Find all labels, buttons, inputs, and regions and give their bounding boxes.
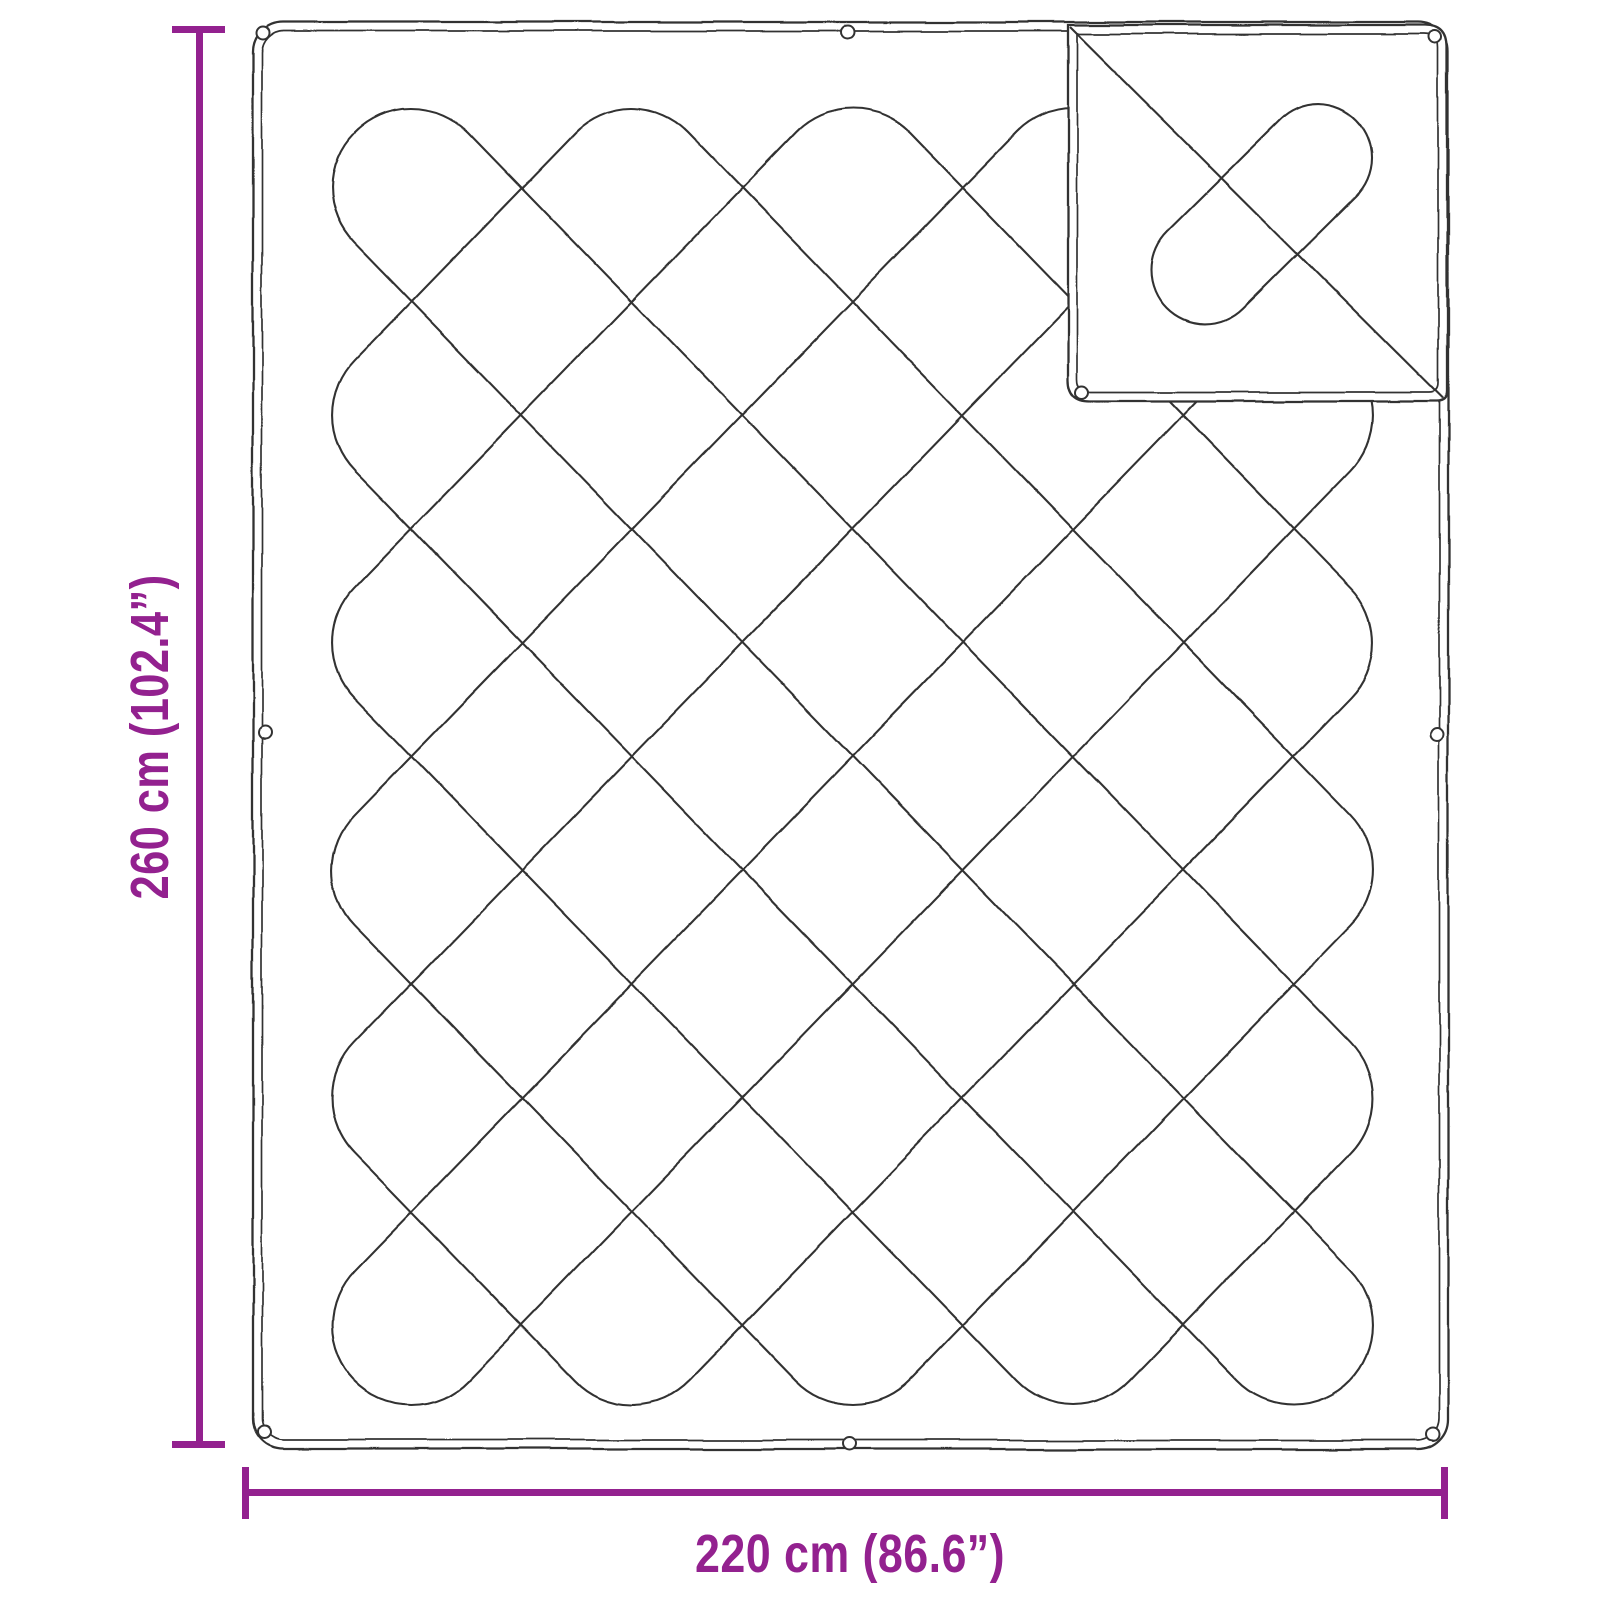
- eyelet: [1429, 31, 1442, 44]
- vertical-dimension-line: [196, 30, 203, 1444]
- blanket-drawing: [253, 22, 1448, 1451]
- eyelet: [842, 26, 855, 39]
- horizontal-dimension-line: [245, 1489, 1448, 1496]
- dimension-cap-right: [1441, 1467, 1448, 1519]
- diagram-canvas: 260 cm (102.4”) 220 cm (86.6”): [0, 0, 1600, 1600]
- dimension-cap-top: [172, 26, 225, 33]
- eyelet: [844, 1438, 857, 1451]
- eyelet: [259, 727, 272, 740]
- height-dimension-label: 260 cm (102.4”): [120, 575, 180, 900]
- eyelet: [1431, 729, 1444, 742]
- eyelet: [1427, 1428, 1440, 1441]
- dimension-cap-bottom: [172, 1441, 225, 1448]
- width-dimension-label: 220 cm (86.6”): [695, 1524, 1005, 1584]
- eyelet: [257, 27, 270, 40]
- dimension-cap-left: [242, 1467, 249, 1519]
- blanket-dimension-diagram: 260 cm (102.4”) 220 cm (86.6”): [0, 0, 1600, 1600]
- eyelet: [1076, 386, 1089, 399]
- eyelet: [258, 1426, 271, 1439]
- corner-flap: [1068, 25, 1447, 401]
